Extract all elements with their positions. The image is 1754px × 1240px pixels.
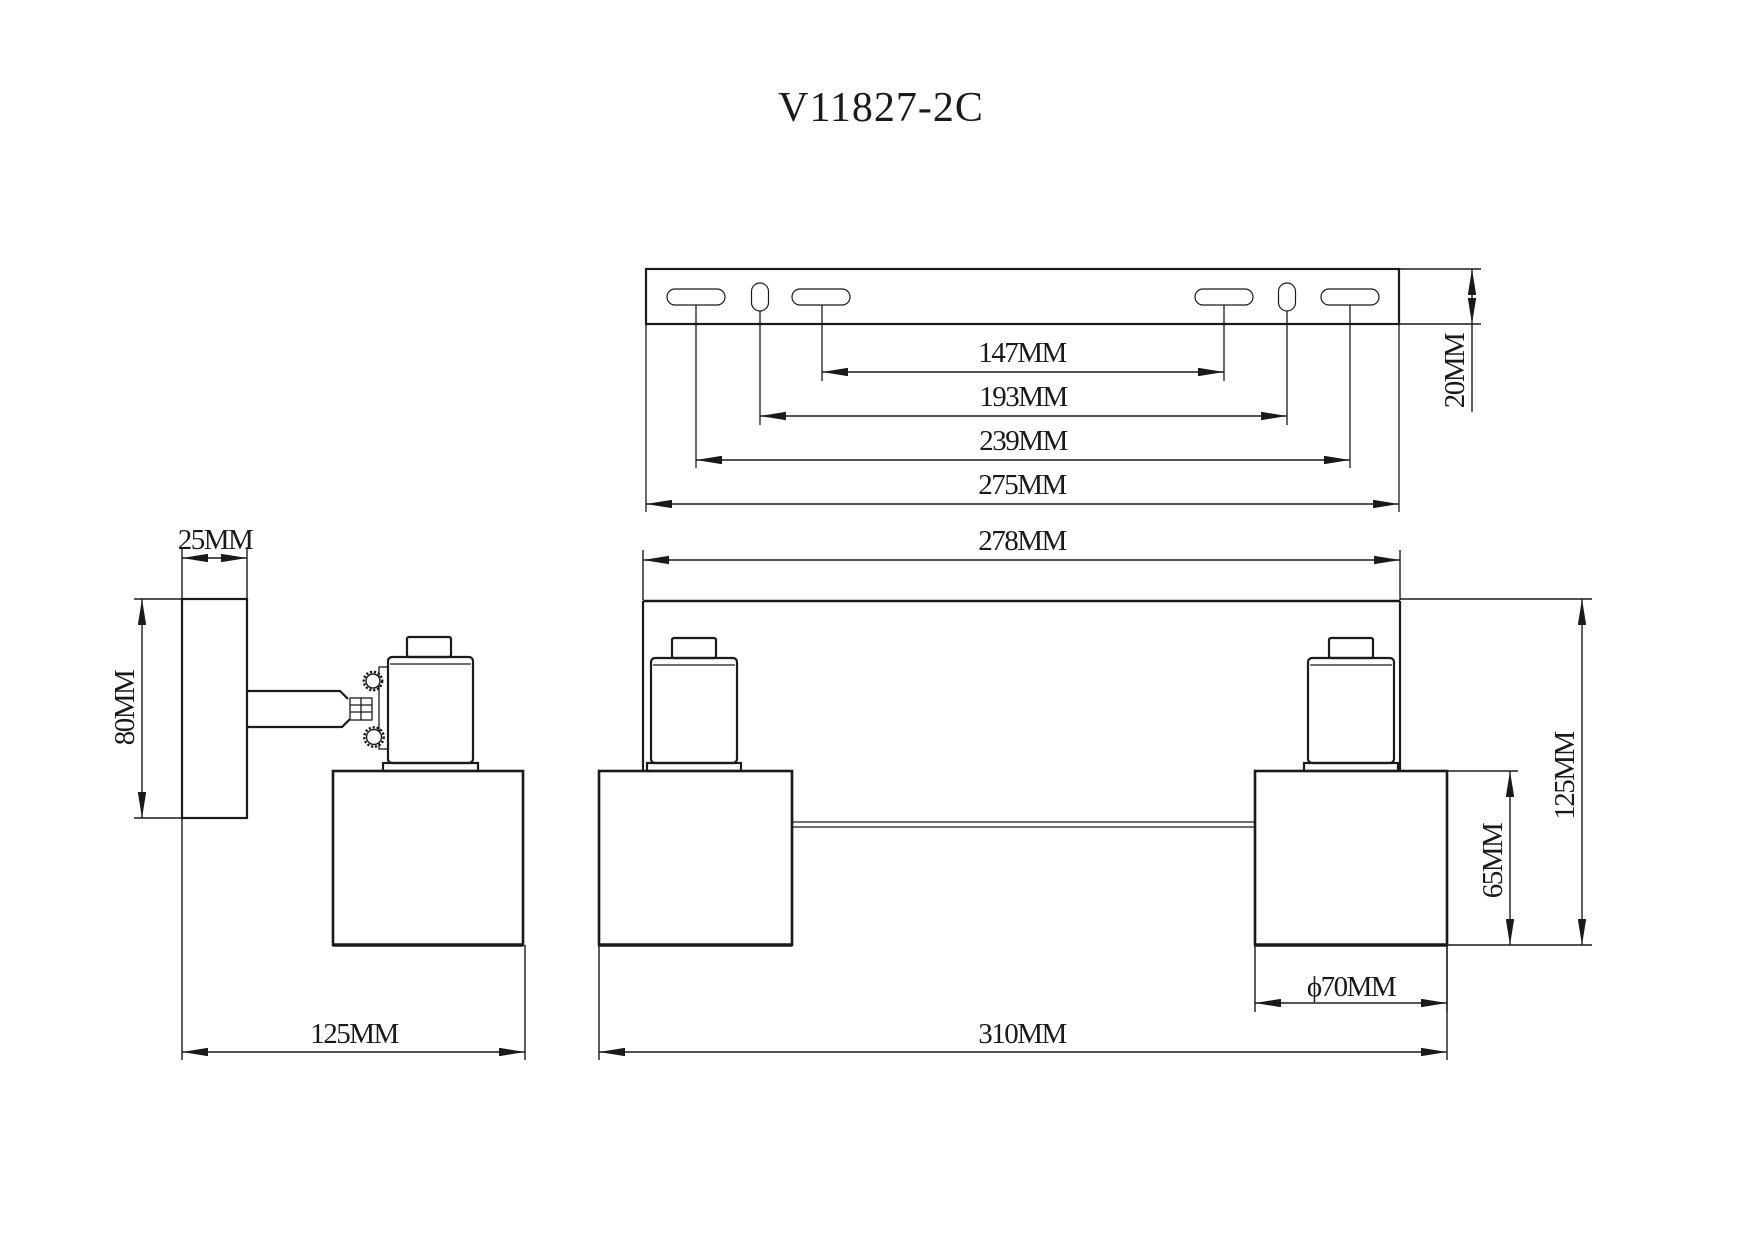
lamp-cap — [407, 637, 451, 657]
side-view: 25MM 80MM — [109, 524, 525, 1060]
lamp-shade — [599, 771, 792, 945]
dim-25mm: 25MM — [178, 524, 253, 599]
dim-label-80mm: 80MM — [109, 670, 141, 745]
dim-label-20mm: 20MM — [1439, 333, 1471, 408]
dim-label-193mm: 193MM — [979, 381, 1067, 413]
lamp-stem — [388, 657, 473, 763]
dim-label-278mm: 278MM — [978, 525, 1066, 557]
drawing-sheet: V11827-2C 147MM 193MM 239MM 275 — [0, 0, 1754, 1240]
lamp-left — [599, 638, 792, 945]
lamp-right — [1255, 638, 1447, 945]
dim-label-70mm: ϕ70MM — [1307, 971, 1396, 1003]
lamp-cap — [1329, 638, 1373, 658]
dim-70mm: ϕ70MM — [1255, 945, 1447, 1012]
dim-label-310mm: 310MM — [978, 1018, 1066, 1050]
support-arm — [247, 667, 388, 749]
lamp-stem — [1308, 658, 1394, 763]
bracket-plate — [646, 269, 1399, 324]
bracket-top-view: 147MM 193MM 239MM 275MM 20MM — [646, 269, 1481, 512]
wall-canopy — [182, 599, 247, 818]
dim-label-65mm: 65MM — [1477, 823, 1509, 898]
lamp-shade — [333, 771, 523, 945]
dim-80mm: 80MM — [109, 599, 182, 818]
dim-label-275mm: 275MM — [978, 469, 1066, 501]
lamp-shade — [1255, 771, 1447, 945]
dim-125mm-side: 125MM — [182, 818, 525, 1060]
front-view: 278MM — [599, 525, 1592, 1060]
drawing-title: V11827-2C — [778, 85, 984, 131]
dim-label-25mm: 25MM — [178, 524, 253, 556]
lamp-cap — [672, 638, 716, 658]
thumbscrew-top — [366, 674, 380, 688]
bracket-slot — [667, 289, 725, 305]
bracket-slot-vertical — [752, 283, 769, 311]
lamp-stem — [651, 658, 737, 763]
dim-label-125mm-front: 125MM — [1549, 732, 1581, 820]
bracket-slot-vertical — [1279, 283, 1296, 311]
thumbscrew-bottom — [367, 730, 382, 745]
dim-label-239mm: 239MM — [979, 425, 1067, 457]
lamp-side — [333, 637, 523, 945]
dim-20mm: 20MM — [1399, 269, 1481, 412]
backplate — [643, 601, 1400, 827]
bracket-slot — [1321, 289, 1379, 305]
bracket-slot — [792, 289, 850, 305]
dim-label-147mm: 147MM — [978, 337, 1066, 369]
dim-278mm: 278MM — [643, 525, 1400, 600]
technical-drawing: V11827-2C 147MM 193MM 239MM 275 — [0, 0, 1754, 1240]
dim-label-125mm-side: 125MM — [310, 1018, 398, 1050]
bracket-slot — [1195, 289, 1253, 305]
